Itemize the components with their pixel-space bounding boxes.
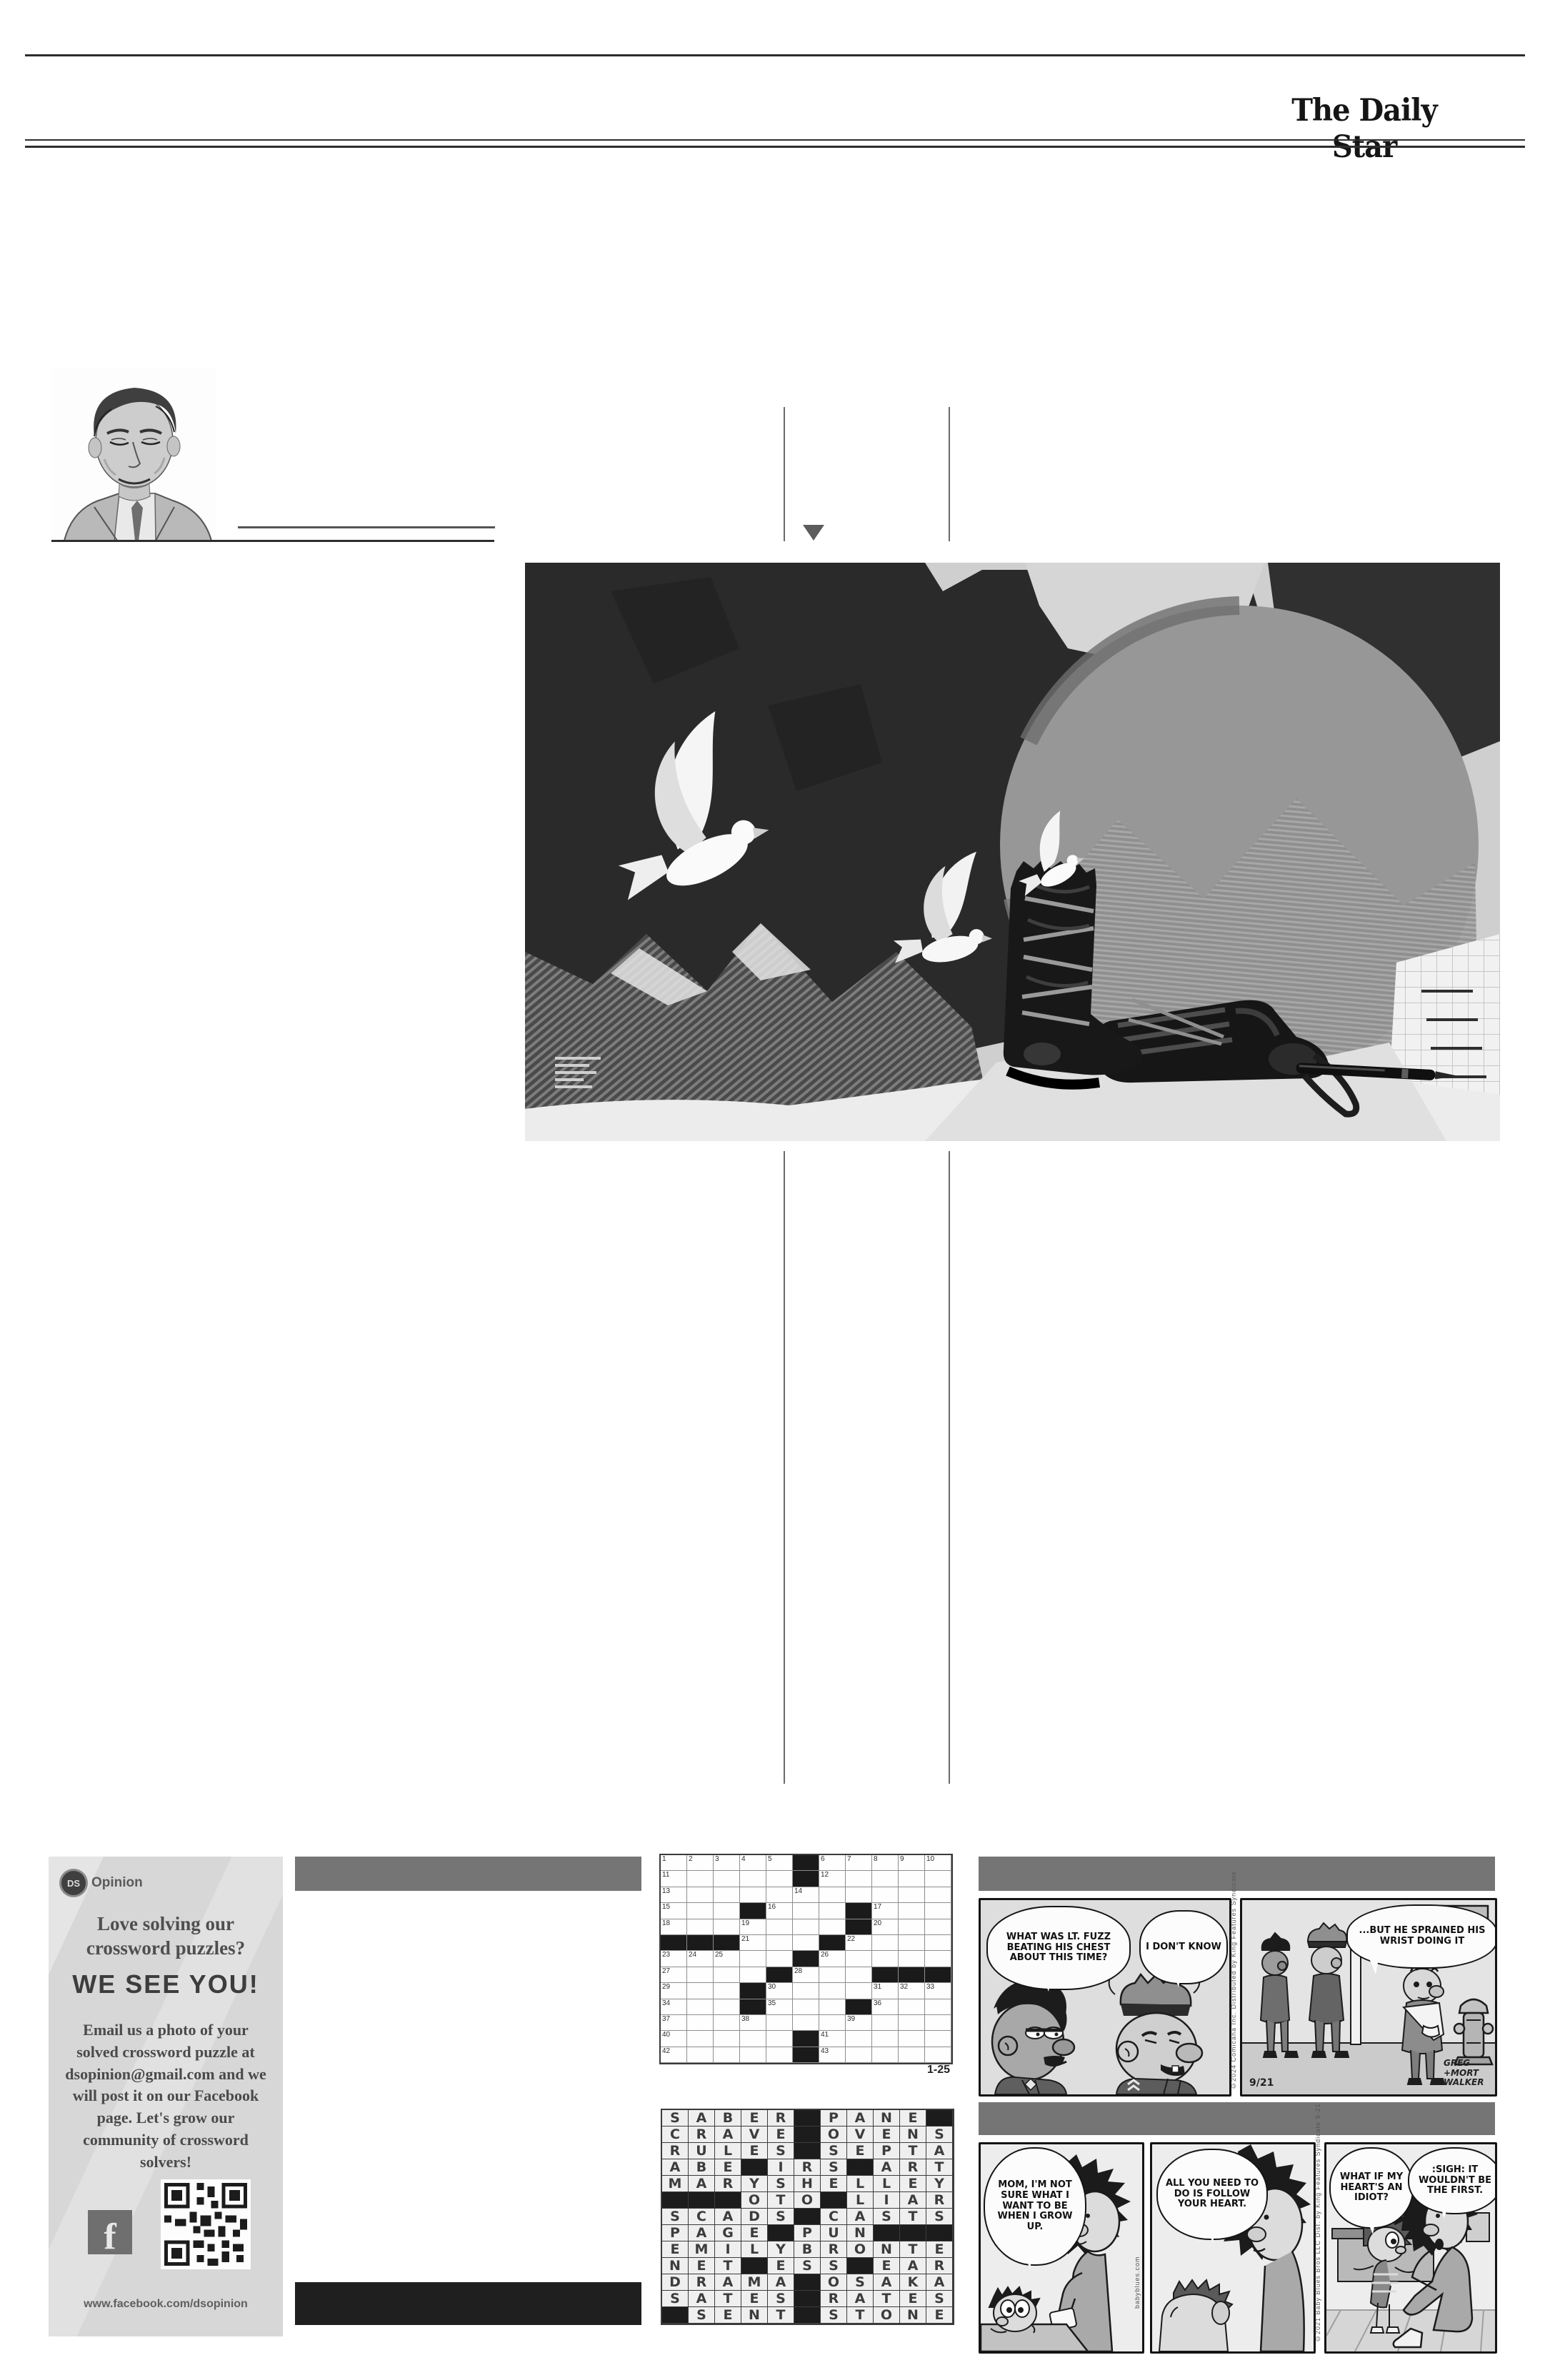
- crossword-cell: [793, 1919, 819, 1935]
- solution-cell: [900, 2225, 926, 2241]
- solution-cell: S: [662, 2110, 689, 2127]
- crossword-cell: [687, 1999, 714, 2015]
- solution-cell: T: [715, 2291, 741, 2307]
- crossword-cell: [766, 2015, 793, 2031]
- solution-cell: N: [741, 2307, 768, 2324]
- solution-cell: [794, 2110, 821, 2127]
- solution-cell: Y: [741, 2176, 768, 2192]
- solution-cell: L: [874, 2176, 900, 2192]
- crossword-cell: [872, 2015, 899, 2031]
- solution-cell: M: [662, 2176, 689, 2192]
- solution-cell: T: [768, 2307, 794, 2324]
- solution-cell: A: [715, 2209, 741, 2225]
- solution-cell: E: [741, 2225, 768, 2241]
- solution-cell: P: [821, 2110, 847, 2127]
- crossword-cell: [899, 1887, 925, 1903]
- crossword-cell: 38: [740, 2015, 766, 2031]
- solution-cell: [768, 2225, 794, 2241]
- crossword-cell: [819, 1919, 846, 1935]
- solution-cell: T: [900, 2209, 926, 2225]
- speech-bubble-tail: [1172, 1972, 1181, 1987]
- crossword-cell: 40: [661, 2031, 687, 2047]
- crossword-cell: [687, 2047, 714, 2063]
- crossword-cell: [846, 1871, 872, 1887]
- solution-cell: S: [768, 2291, 794, 2307]
- crossword-cell: 24: [687, 1951, 714, 1967]
- speech-bubble-tail: [1206, 2227, 1216, 2243]
- crossword-cell: [872, 2047, 899, 2063]
- solution-cell: N: [900, 2127, 926, 2143]
- crossword-cell: [925, 1871, 951, 1887]
- crossword-cell: 25: [714, 1951, 740, 1967]
- solution-cell: O: [821, 2274, 847, 2291]
- crossword-cell: 32: [899, 1983, 925, 1999]
- crossword-cell: [661, 1935, 687, 1951]
- crossword-cell: 42: [661, 2047, 687, 2063]
- solution-cell: [741, 2159, 768, 2176]
- solution-cell: D: [741, 2209, 768, 2225]
- section-title-bar: [295, 1857, 641, 1891]
- crossword-cell: 20: [872, 1919, 899, 1935]
- solution-cell: E: [900, 2291, 926, 2307]
- crossword-cell: 12: [819, 1871, 846, 1887]
- solution-cell: A: [715, 2127, 741, 2143]
- crossword-cell: [793, 2047, 819, 2063]
- solution-cell: A: [874, 2159, 900, 2176]
- solution-cell: [794, 2127, 821, 2143]
- solution-cell: O: [741, 2192, 768, 2209]
- ds-opinion-logo-icon: DS: [61, 1871, 86, 1895]
- crossword-cell: 2: [687, 1855, 714, 1871]
- crossword-cell: 8: [872, 1855, 899, 1871]
- solution-cell: K: [900, 2274, 926, 2291]
- column-divider: [784, 1151, 785, 1784]
- solution-cell: [794, 2274, 821, 2291]
- crossword-cell: [687, 1871, 714, 1887]
- solution-cell: V: [741, 2127, 768, 2143]
- comic-baby-blues: MOM, I'M NOT SURE WHAT I WANT TO BE WHEN…: [979, 2142, 1495, 2356]
- comic-panel: MOM, I'M NOT SURE WHAT I WANT TO BE WHEN…: [979, 2142, 1144, 2354]
- solution-cell: A: [926, 2143, 953, 2159]
- solution-cell: E: [662, 2241, 689, 2258]
- solution-cell: A: [900, 2258, 926, 2274]
- solution-cell: [926, 2225, 953, 2241]
- solution-cell: S: [847, 2274, 874, 2291]
- solution-cell: S: [794, 2258, 821, 2274]
- solution-cell: S: [926, 2209, 953, 2225]
- crossword-cell: [872, 2031, 899, 2047]
- crossword-cell: 7: [846, 1855, 872, 1871]
- promo-shout: WE SEE YOU!: [49, 1969, 283, 1999]
- crossword-grid: 1234567891011121314151617181920212223242…: [659, 1854, 953, 2064]
- solution-cell: S: [768, 2209, 794, 2225]
- speech-bubble-tail: [1042, 1976, 1051, 1992]
- comic-title-bar-baby-blues: [979, 2102, 1495, 2135]
- solution-cell: U: [689, 2143, 715, 2159]
- solution-cell: E: [741, 2110, 768, 2127]
- solution-cell: E: [741, 2143, 768, 2159]
- masthead-logo: The Daily Star: [1279, 92, 1450, 165]
- solution-cell: [715, 2192, 741, 2209]
- crossword-cell: 18: [661, 1919, 687, 1935]
- solution-cell: L: [715, 2143, 741, 2159]
- solution-cell: A: [662, 2159, 689, 2176]
- crossword-cell: [819, 2015, 846, 2031]
- crossword-cell: 3: [714, 1855, 740, 1871]
- crossword-cell: [793, 1871, 819, 1887]
- solution-cell: R: [768, 2110, 794, 2127]
- solution-cell: A: [715, 2274, 741, 2291]
- crossword-cell: 13: [661, 1887, 687, 1903]
- solution-cell: P: [794, 2225, 821, 2241]
- solution-cell: R: [821, 2291, 847, 2307]
- editorial-illustration: [525, 563, 1500, 1141]
- solution-cell: E: [900, 2110, 926, 2127]
- crossword-cell: [740, 1903, 766, 1919]
- solution-cell: S: [821, 2143, 847, 2159]
- crossword-cell: [899, 1967, 925, 1983]
- crossword-cell: [714, 2015, 740, 2031]
- crossword-cell: [925, 1903, 951, 1919]
- promo-facebook-url: www.facebook.com/dsopinion: [49, 2298, 283, 2311]
- qr-code: [161, 2179, 251, 2273]
- crossword-cell: 6: [819, 1855, 846, 1871]
- crossword-cell: 28: [793, 1967, 819, 1983]
- crossword-cell: [793, 1855, 819, 1871]
- solution-cell: P: [662, 2225, 689, 2241]
- solution-cell: C: [821, 2209, 847, 2225]
- solution-cell: S: [689, 2307, 715, 2324]
- solution-cell: A: [768, 2274, 794, 2291]
- solution-cell: S: [874, 2209, 900, 2225]
- solution-cell: E: [768, 2258, 794, 2274]
- solution-cell: M: [741, 2274, 768, 2291]
- solution-cell: N: [662, 2258, 689, 2274]
- solution-cell: N: [874, 2110, 900, 2127]
- byline-rule: [238, 526, 495, 528]
- solution-cell: E: [926, 2241, 953, 2258]
- crossword-cell: [793, 1935, 819, 1951]
- solution-cell: V: [847, 2127, 874, 2143]
- crossword-cell: [714, 1919, 740, 1935]
- comic-copyright: ©2024 Comicana Inc. Distributed by King …: [1230, 1904, 1237, 2089]
- solution-cell: A: [874, 2274, 900, 2291]
- solution-cell: O: [794, 2192, 821, 2209]
- solution-cell: R: [715, 2176, 741, 2192]
- solution-cell: L: [847, 2192, 874, 2209]
- crossword-cell: [846, 1967, 872, 1983]
- solution-cell: [662, 2307, 689, 2324]
- solution-cell: E: [900, 2176, 926, 2192]
- solution-cell: T: [768, 2192, 794, 2209]
- solution-cell: S: [926, 2291, 953, 2307]
- solution-cell: [662, 2192, 689, 2209]
- crossword-cell: [925, 2031, 951, 2047]
- solution-cell: E: [926, 2307, 953, 2324]
- solution-cell: T: [874, 2291, 900, 2307]
- crossword-cell: [793, 1999, 819, 2015]
- solution-cell: E: [715, 2307, 741, 2324]
- column-base-rule: [51, 540, 494, 542]
- speech-bubble: I DON'T KNOW: [1139, 1910, 1228, 1984]
- solution-cell: [847, 2258, 874, 2274]
- crossword-cell: [740, 1967, 766, 1983]
- crossword-cell: [687, 1919, 714, 1935]
- crossword-cell: [846, 1919, 872, 1935]
- crossword-cell: 23: [661, 1951, 687, 1967]
- solution-cell: R: [662, 2143, 689, 2159]
- solution-cell: A: [900, 2192, 926, 2209]
- crossword-cell: [872, 1871, 899, 1887]
- crossword-cell: 4: [740, 1855, 766, 1871]
- crossword-cell: [899, 1999, 925, 2015]
- crossword-cell: [740, 1983, 766, 1999]
- solution-cell: S: [821, 2159, 847, 2176]
- comic-date: 9/21: [1249, 2077, 1274, 2089]
- solution-cell: R: [926, 2192, 953, 2209]
- comic-site-url: babyblues.com: [1134, 2187, 1141, 2309]
- speech-bubble-tail: [1369, 1959, 1379, 1974]
- crossword-cell: [925, 1935, 951, 1951]
- solution-cell: E: [715, 2159, 741, 2176]
- crossword-cell: 26: [819, 1951, 846, 1967]
- crossword-cell: [793, 2031, 819, 2047]
- crossword-cell: 9: [899, 1855, 925, 1871]
- solution-cell: T: [900, 2143, 926, 2159]
- crossword-cell: 36: [872, 1999, 899, 2015]
- crossword-cell: [846, 2031, 872, 2047]
- promo-headline: Love solving our crossword puzzles?: [49, 1912, 283, 1961]
- solution-cell: E: [874, 2258, 900, 2274]
- solution-cell: N: [900, 2307, 926, 2324]
- solution-cell: L: [847, 2176, 874, 2192]
- crossword-cell: [899, 1935, 925, 1951]
- solution-cell: E: [874, 2127, 900, 2143]
- promo-social-row: f: [49, 2171, 283, 2285]
- solution-cell: [794, 2291, 821, 2307]
- crossword-cell: [793, 1983, 819, 1999]
- crossword-cell: [872, 1967, 899, 1983]
- solution-cell: R: [900, 2159, 926, 2176]
- solution-cell: E: [741, 2291, 768, 2307]
- crossword-cell: [899, 2031, 925, 2047]
- solution-cell: N: [847, 2225, 874, 2241]
- crossword-cell: [687, 1967, 714, 1983]
- speech-bubble: WHAT WAS LT. FUZZ BEATING HIS CHEST ABOU…: [986, 1906, 1131, 1990]
- comic-panel: ...BUT HE SPRAINED HIS WRIST DOING IT 9/…: [1240, 1898, 1497, 2097]
- crossword-cell: [819, 1935, 846, 1951]
- solution-cell: S: [662, 2209, 689, 2225]
- crossword-cell: [899, 2015, 925, 2031]
- solution-cell: S: [768, 2143, 794, 2159]
- solution-cell: N: [874, 2241, 900, 2258]
- solution-cell: O: [874, 2307, 900, 2324]
- solution-cell: D: [662, 2274, 689, 2291]
- solution-cell: A: [847, 2291, 874, 2307]
- solution-cell: [794, 2307, 821, 2324]
- crossword-cell: 39: [846, 2015, 872, 2031]
- column-divider: [949, 1151, 950, 1784]
- solution-cell: H: [794, 2176, 821, 2192]
- solution-cell: A: [847, 2110, 874, 2127]
- solution-cell: E: [689, 2258, 715, 2274]
- crossword-cell: [740, 2047, 766, 2063]
- solution-cell: R: [926, 2258, 953, 2274]
- solution-cell: I: [768, 2159, 794, 2176]
- crossword-cell: [819, 1983, 846, 1999]
- crossword-cell: [899, 1871, 925, 1887]
- solution-cell: A: [847, 2209, 874, 2225]
- solution-cell: P: [874, 2143, 900, 2159]
- solution-cell: E: [847, 2143, 874, 2159]
- comic-panel: ALL YOU NEED TO DO IS FOLLOW YOUR HEART.: [1150, 2142, 1316, 2354]
- crossword-cell: [819, 1903, 846, 1919]
- crossword-cell: [925, 2015, 951, 2031]
- solution-cell: C: [662, 2127, 689, 2143]
- solution-cell: R: [821, 2241, 847, 2258]
- crossword-cell: 31: [872, 1983, 899, 1999]
- newspaper-page: The Daily Star: [0, 0, 1550, 2380]
- comic-panel: WHAT WAS LT. FUZZ BEATING HIS CHEST ABOU…: [979, 1898, 1231, 2097]
- solution-cell: O: [847, 2241, 874, 2258]
- crossword-cell: [899, 1951, 925, 1967]
- crossword-cell: [687, 2015, 714, 2031]
- solution-cell: I: [874, 2192, 900, 2209]
- comic-copyright: ©2021 Baby Blues Bros LLC Dist. by King …: [1314, 2149, 1321, 2342]
- crossword-cell: [714, 2047, 740, 2063]
- crossword-cell: [687, 1903, 714, 1919]
- masthead-rule-thick: [25, 146, 1525, 148]
- solution-cell: U: [821, 2225, 847, 2241]
- crossword-cell: [740, 1999, 766, 2015]
- crossword-cell: [714, 1887, 740, 1903]
- solution-cell: B: [794, 2241, 821, 2258]
- crossword-cell: [846, 1983, 872, 1999]
- solution-cell: A: [689, 2291, 715, 2307]
- solution-cell: E: [768, 2127, 794, 2143]
- crossword-cell: [872, 1935, 899, 1951]
- crossword-cell: [846, 1903, 872, 1919]
- solution-cell: E: [821, 2176, 847, 2192]
- comic-signature: GREG +MORT WALKER: [1444, 2059, 1489, 2087]
- crossword-cell: 34: [661, 1999, 687, 2015]
- section-footer-bar: [295, 2282, 641, 2325]
- solution-cell: T: [715, 2258, 741, 2274]
- solution-cell: B: [689, 2159, 715, 2176]
- solution-cell: A: [689, 2176, 715, 2192]
- crossword-solution-grid: SABERPANECRAVEOVENSRULESSEPTAABEIRSARTMA…: [661, 2109, 954, 2325]
- crossword-cell: [766, 1951, 793, 1967]
- speech-bubble-tail: [1024, 2253, 1033, 2269]
- columnist-portrait-sketch: [51, 368, 216, 541]
- crossword-cell: 11: [661, 1871, 687, 1887]
- crossword-cell: [714, 1999, 740, 2015]
- solution-cell: O: [821, 2127, 847, 2143]
- crossword-cell: 27: [661, 1967, 687, 1983]
- crossword-cell: [740, 1887, 766, 1903]
- crossword-cell: [925, 1999, 951, 2015]
- crossword-cell: [925, 1951, 951, 1967]
- solution-cell: B: [715, 2110, 741, 2127]
- solution-cell: C: [689, 2209, 715, 2225]
- crossword-cell: [766, 1871, 793, 1887]
- column-divider: [949, 407, 950, 541]
- crossword-cell: [846, 2047, 872, 2063]
- crossword-cell: 19: [740, 1919, 766, 1935]
- crossword-cell: [714, 1935, 740, 1951]
- crossword-cell: [899, 2047, 925, 2063]
- solution-cell: A: [689, 2225, 715, 2241]
- solution-cell: R: [794, 2159, 821, 2176]
- crossword-cell: 22: [846, 1935, 872, 1951]
- crossword-cell: [714, 2031, 740, 2047]
- solution-cell: Y: [768, 2241, 794, 2258]
- solution-cell: [794, 2209, 821, 2225]
- crossword-date-label: 1-25: [882, 2064, 950, 2077]
- solution-cell: S: [768, 2176, 794, 2192]
- solution-cell: M: [689, 2241, 715, 2258]
- crossword-cell: [925, 2047, 951, 2063]
- crossword-cell: [819, 1999, 846, 2015]
- solution-cell: Y: [926, 2176, 953, 2192]
- crossword-cell: [925, 1967, 951, 1983]
- crossword-cell: [687, 1983, 714, 1999]
- crossword-promo-box: DS Opinion Love solving our crossword pu…: [49, 1857, 283, 2336]
- solution-cell: S: [926, 2127, 953, 2143]
- column-divider: [784, 407, 785, 541]
- solution-cell: [847, 2159, 874, 2176]
- solution-cell: I: [715, 2241, 741, 2258]
- crossword-cell: [766, 1887, 793, 1903]
- promo-logo: DS Opinion: [61, 1871, 143, 1895]
- crossword-cell: 1: [661, 1855, 687, 1871]
- crossword-cell: [766, 2031, 793, 2047]
- crossword-cell: [872, 1951, 899, 1967]
- crossword-cell: [899, 1919, 925, 1935]
- crossword-cell: 21: [740, 1935, 766, 1951]
- solution-cell: S: [821, 2307, 847, 2324]
- crossword-cell: [740, 1951, 766, 1967]
- solution-cell: [821, 2192, 847, 2209]
- speech-bubble: MOM, I'M NOT SURE WHAT I WANT TO BE WHEN…: [984, 2147, 1086, 2266]
- crossword-cell: 41: [819, 2031, 846, 2047]
- crossword-cell: [872, 1887, 899, 1903]
- crossword-cell: 17: [872, 1903, 899, 1919]
- crossword-cell: [766, 2047, 793, 2063]
- speech-bubble-tail: [1441, 2203, 1450, 2219]
- speech-bubble: :SIGH: IT WOULDN'T BE THE FIRST.: [1408, 2147, 1497, 2214]
- top-rule: [25, 54, 1525, 56]
- solution-cell: [689, 2192, 715, 2209]
- crossword-cell: 30: [766, 1983, 793, 1999]
- crossword-cell: 16: [766, 1903, 793, 1919]
- crossword-cell: [793, 1903, 819, 1919]
- crossword-cell: [714, 1871, 740, 1887]
- speech-bubble: WHAT IF MY HEART'S AN IDIOT?: [1329, 2147, 1414, 2229]
- speech-bubble-tail: [1366, 2219, 1376, 2234]
- crossword-cell: [766, 1919, 793, 1935]
- comic-beetle-bailey: WHAT WAS LT. FUZZ BEATING HIS CHEST ABOU…: [979, 1898, 1495, 2097]
- crossword-cell: 5: [766, 1855, 793, 1871]
- crossword-cell: [714, 1903, 740, 1919]
- crossword-cell: 43: [819, 2047, 846, 2063]
- crossword-cell: [687, 1887, 714, 1903]
- crossword-cell: 35: [766, 1999, 793, 2015]
- crossword-cell: [687, 2031, 714, 2047]
- solution-cell: S: [662, 2291, 689, 2307]
- solution-cell: [741, 2258, 768, 2274]
- crossword-cell: [846, 1999, 872, 2015]
